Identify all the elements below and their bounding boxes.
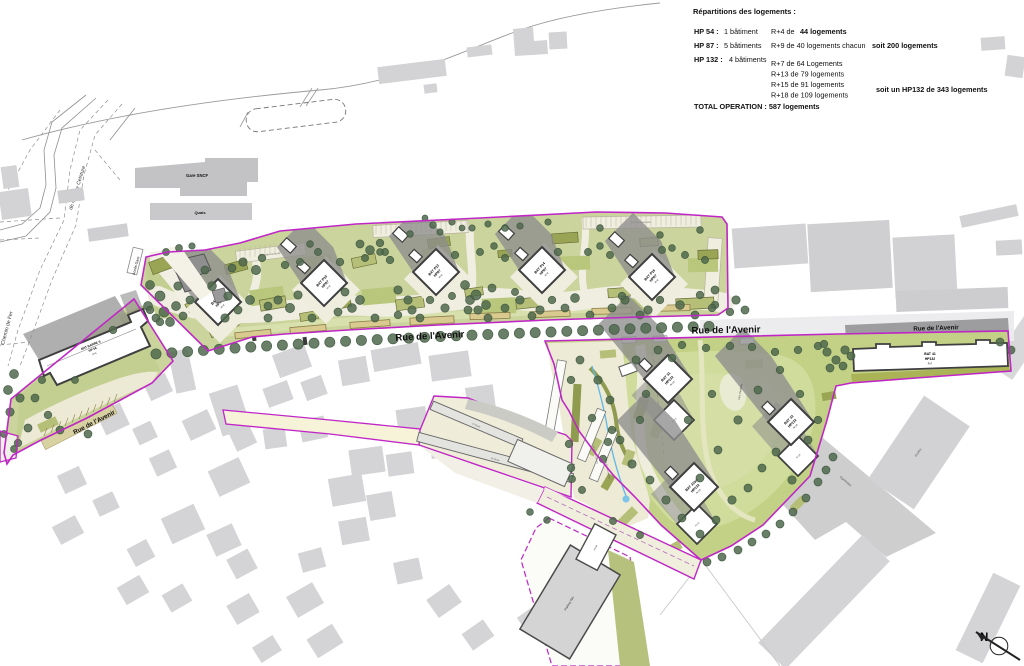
svg-text:soit 200 logements: soit 200 logements xyxy=(872,41,938,50)
svg-text:HP 54 :: HP 54 : xyxy=(694,27,719,36)
svg-text:soit un HP132 de 343 logements: soit un HP132 de 343 logements xyxy=(876,85,988,94)
svg-text:R+9 de 40 logements chacun: R+9 de 40 logements chacun xyxy=(771,41,866,50)
svg-text:HP132: HP132 xyxy=(925,357,935,361)
svg-text:Quais: Quais xyxy=(194,210,206,215)
svg-text:4 bâtiments: 4 bâtiments xyxy=(729,55,767,64)
svg-text:TOTAL OPERATION : 587 logement: TOTAL OPERATION : 587 logements xyxy=(694,102,820,111)
svg-text:HP 87 :: HP 87 : xyxy=(694,41,719,50)
svg-text:Rue de l'Avenir: Rue de l'Avenir xyxy=(691,324,761,336)
svg-text:HP 132 :: HP 132 : xyxy=(694,55,723,64)
svg-text:R+4 de: R+4 de xyxy=(771,27,795,36)
svg-text:Gare SNCF: Gare SNCF xyxy=(186,173,209,178)
svg-text:44 logements: 44 logements xyxy=(800,27,847,36)
svg-text:5 bâtiments: 5 bâtiments xyxy=(724,41,762,50)
svg-text:BAT 41: BAT 41 xyxy=(924,352,936,356)
svg-text:R+7: R+7 xyxy=(928,363,933,366)
svg-text:R+18 de 109 logements: R+18 de 109 logements xyxy=(771,91,849,100)
svg-text:R+13 de 79 logements: R+13 de 79 logements xyxy=(771,70,845,79)
svg-text:1 bâtiment: 1 bâtiment xyxy=(724,27,758,36)
svg-text:R+7 de 64 Logements: R+7 de 64 Logements xyxy=(771,59,843,68)
svg-text:Répartitions des logements :: Répartitions des logements : xyxy=(693,7,796,16)
svg-text:R+15 de 91 logements: R+15 de 91 logements xyxy=(771,80,845,89)
